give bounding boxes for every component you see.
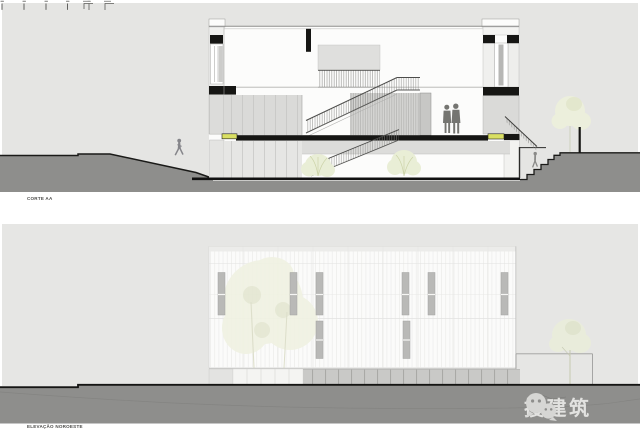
watermark: 搜建筑 [524, 392, 640, 426]
accent-strip [488, 134, 504, 139]
scale-bar-elevation [0, 0, 100, 9]
section-title: CORTE AA [27, 196, 52, 201]
scale-end-mark [105, 4, 114, 11]
building-section [192, 19, 546, 179]
elevation-title: ELEVAÇÃO NOROESTE [27, 424, 83, 429]
wechat-icon [524, 392, 558, 422]
accent-strip [222, 134, 237, 139]
section-drawing [0, 0, 640, 441]
scale-end-mark [84, 4, 93, 10]
column-cut [306, 29, 311, 52]
base-panels [209, 369, 520, 384]
post [579, 127, 581, 153]
upper-floor-railing [318, 45, 380, 87]
facade [209, 247, 516, 369]
architectural-sheet: CORTE AA ELEVAÇÃO NOROESTE [0, 0, 640, 441]
